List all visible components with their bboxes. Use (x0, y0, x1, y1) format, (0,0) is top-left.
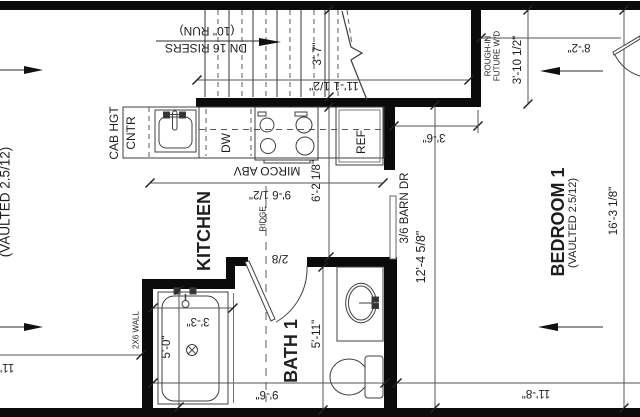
svg-text:(VAULTED 2.5/12): (VAULTED 2.5/12) (567, 178, 579, 268)
svg-text:3'-10 1/2": 3'-10 1/2" (512, 36, 524, 84)
svg-text:9'-6": 9'-6" (256, 388, 279, 400)
svg-text:BATH 1: BATH 1 (281, 319, 301, 383)
svg-text:KITCHEN: KITCHEN (194, 191, 214, 271)
svg-text:CNTR: CNTR (124, 116, 138, 150)
svg-text:11'-8": 11'-8" (522, 387, 550, 399)
svg-text:3'-6": 3'-6" (423, 131, 446, 143)
svg-text:2/8: 2/8 (271, 252, 288, 266)
svg-text:(10" RUN): (10" RUN) (180, 24, 235, 38)
svg-text:6'-2 1/8": 6'-2 1/8" (311, 160, 323, 202)
svg-text:DN 16 RISERS: DN 16 RISERS (165, 41, 247, 55)
svg-text:8'-2": 8'-2" (568, 41, 591, 53)
svg-text:DW: DW (219, 132, 233, 153)
svg-text:ROUGH-IN: ROUGH-IN (484, 36, 493, 77)
svg-text:5'-11": 5'-11" (311, 320, 323, 348)
svg-text:CAB HGT: CAB HGT (107, 106, 121, 160)
svg-text:MIRCO ABV: MIRCO ABV (234, 164, 301, 178)
svg-text:RIDGE: RIDGE (259, 206, 268, 231)
svg-text:5'-0": 5'-0" (161, 336, 173, 359)
svg-text:16'-3 1/8": 16'-3 1/8" (608, 187, 620, 235)
svg-text:11'-6": 11'-6" (0, 361, 14, 373)
svg-text:12'-4 5/8": 12'-4 5/8" (414, 231, 428, 284)
svg-text:(VAULTED 2.5/12): (VAULTED 2.5/12) (0, 147, 13, 258)
svg-text:9'-6 1/2": 9'-6 1/2" (249, 188, 291, 200)
svg-text:11'-1 1/2": 11'-1 1/2" (309, 79, 359, 93)
svg-text:2X6 WALL: 2X6 WALL (132, 310, 141, 348)
svg-text:REF: REF (354, 130, 368, 154)
svg-text:3'-7": 3'-7" (312, 43, 324, 66)
svg-text:BEDROOM 1: BEDROOM 1 (548, 167, 568, 276)
svg-text:3/6 BARN DR: 3/6 BARN DR (399, 173, 411, 244)
svg-text:3'-3": 3'-3" (187, 315, 210, 327)
